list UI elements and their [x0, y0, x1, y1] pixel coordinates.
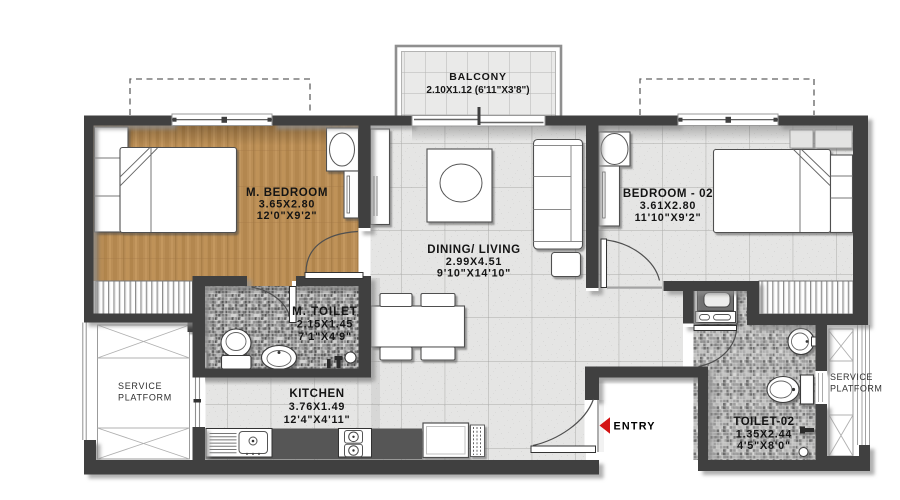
svg-text:DINING/ LIVING: DINING/ LIVING: [427, 244, 520, 256]
svg-text:2.99X4.51: 2.99X4.51: [446, 256, 502, 268]
svg-text:12'0"X9'2": 12'0"X9'2": [257, 210, 318, 222]
svg-text:3.76X1.49: 3.76X1.49: [289, 401, 345, 413]
svg-text:11'10"X9'2": 11'10"X9'2": [635, 212, 702, 224]
svg-text:TOILET-02: TOILET-02: [733, 416, 794, 428]
svg-text:PLATFORM: PLATFORM: [830, 384, 882, 394]
svg-text:M. BEDROOM: M. BEDROOM: [246, 187, 328, 199]
svg-text:ENTRY: ENTRY: [614, 421, 656, 433]
svg-text:BEDROOM - 02: BEDROOM - 02: [623, 188, 713, 200]
svg-text:1.35X2.44: 1.35X2.44: [736, 429, 792, 441]
svg-text:M. TOILET: M. TOILET: [292, 306, 358, 318]
svg-text:7'1"X4'9": 7'1"X4'9": [298, 331, 352, 343]
svg-text:KITCHEN: KITCHEN: [289, 388, 344, 400]
svg-text:9'10"X14'10": 9'10"X14'10": [437, 268, 511, 280]
svg-text:PLATFORM: PLATFORM: [118, 393, 172, 403]
svg-text:SERVICE: SERVICE: [118, 381, 162, 391]
svg-text:SERVICE: SERVICE: [830, 372, 873, 382]
svg-text:3.65X2.80: 3.65X2.80: [259, 199, 315, 211]
svg-text:BALCONY: BALCONY: [449, 71, 507, 83]
svg-text:3.61X2.80: 3.61X2.80: [640, 200, 696, 212]
svg-text:2.15X1.45: 2.15X1.45: [297, 319, 353, 331]
svg-text:4'5"X8'0": 4'5"X8'0": [737, 440, 791, 452]
svg-text:2.10X1.12 (6'11"X3'8"): 2.10X1.12 (6'11"X3'8"): [426, 85, 529, 96]
svg-text:12'4"X4'11": 12'4"X4'11": [284, 414, 351, 426]
